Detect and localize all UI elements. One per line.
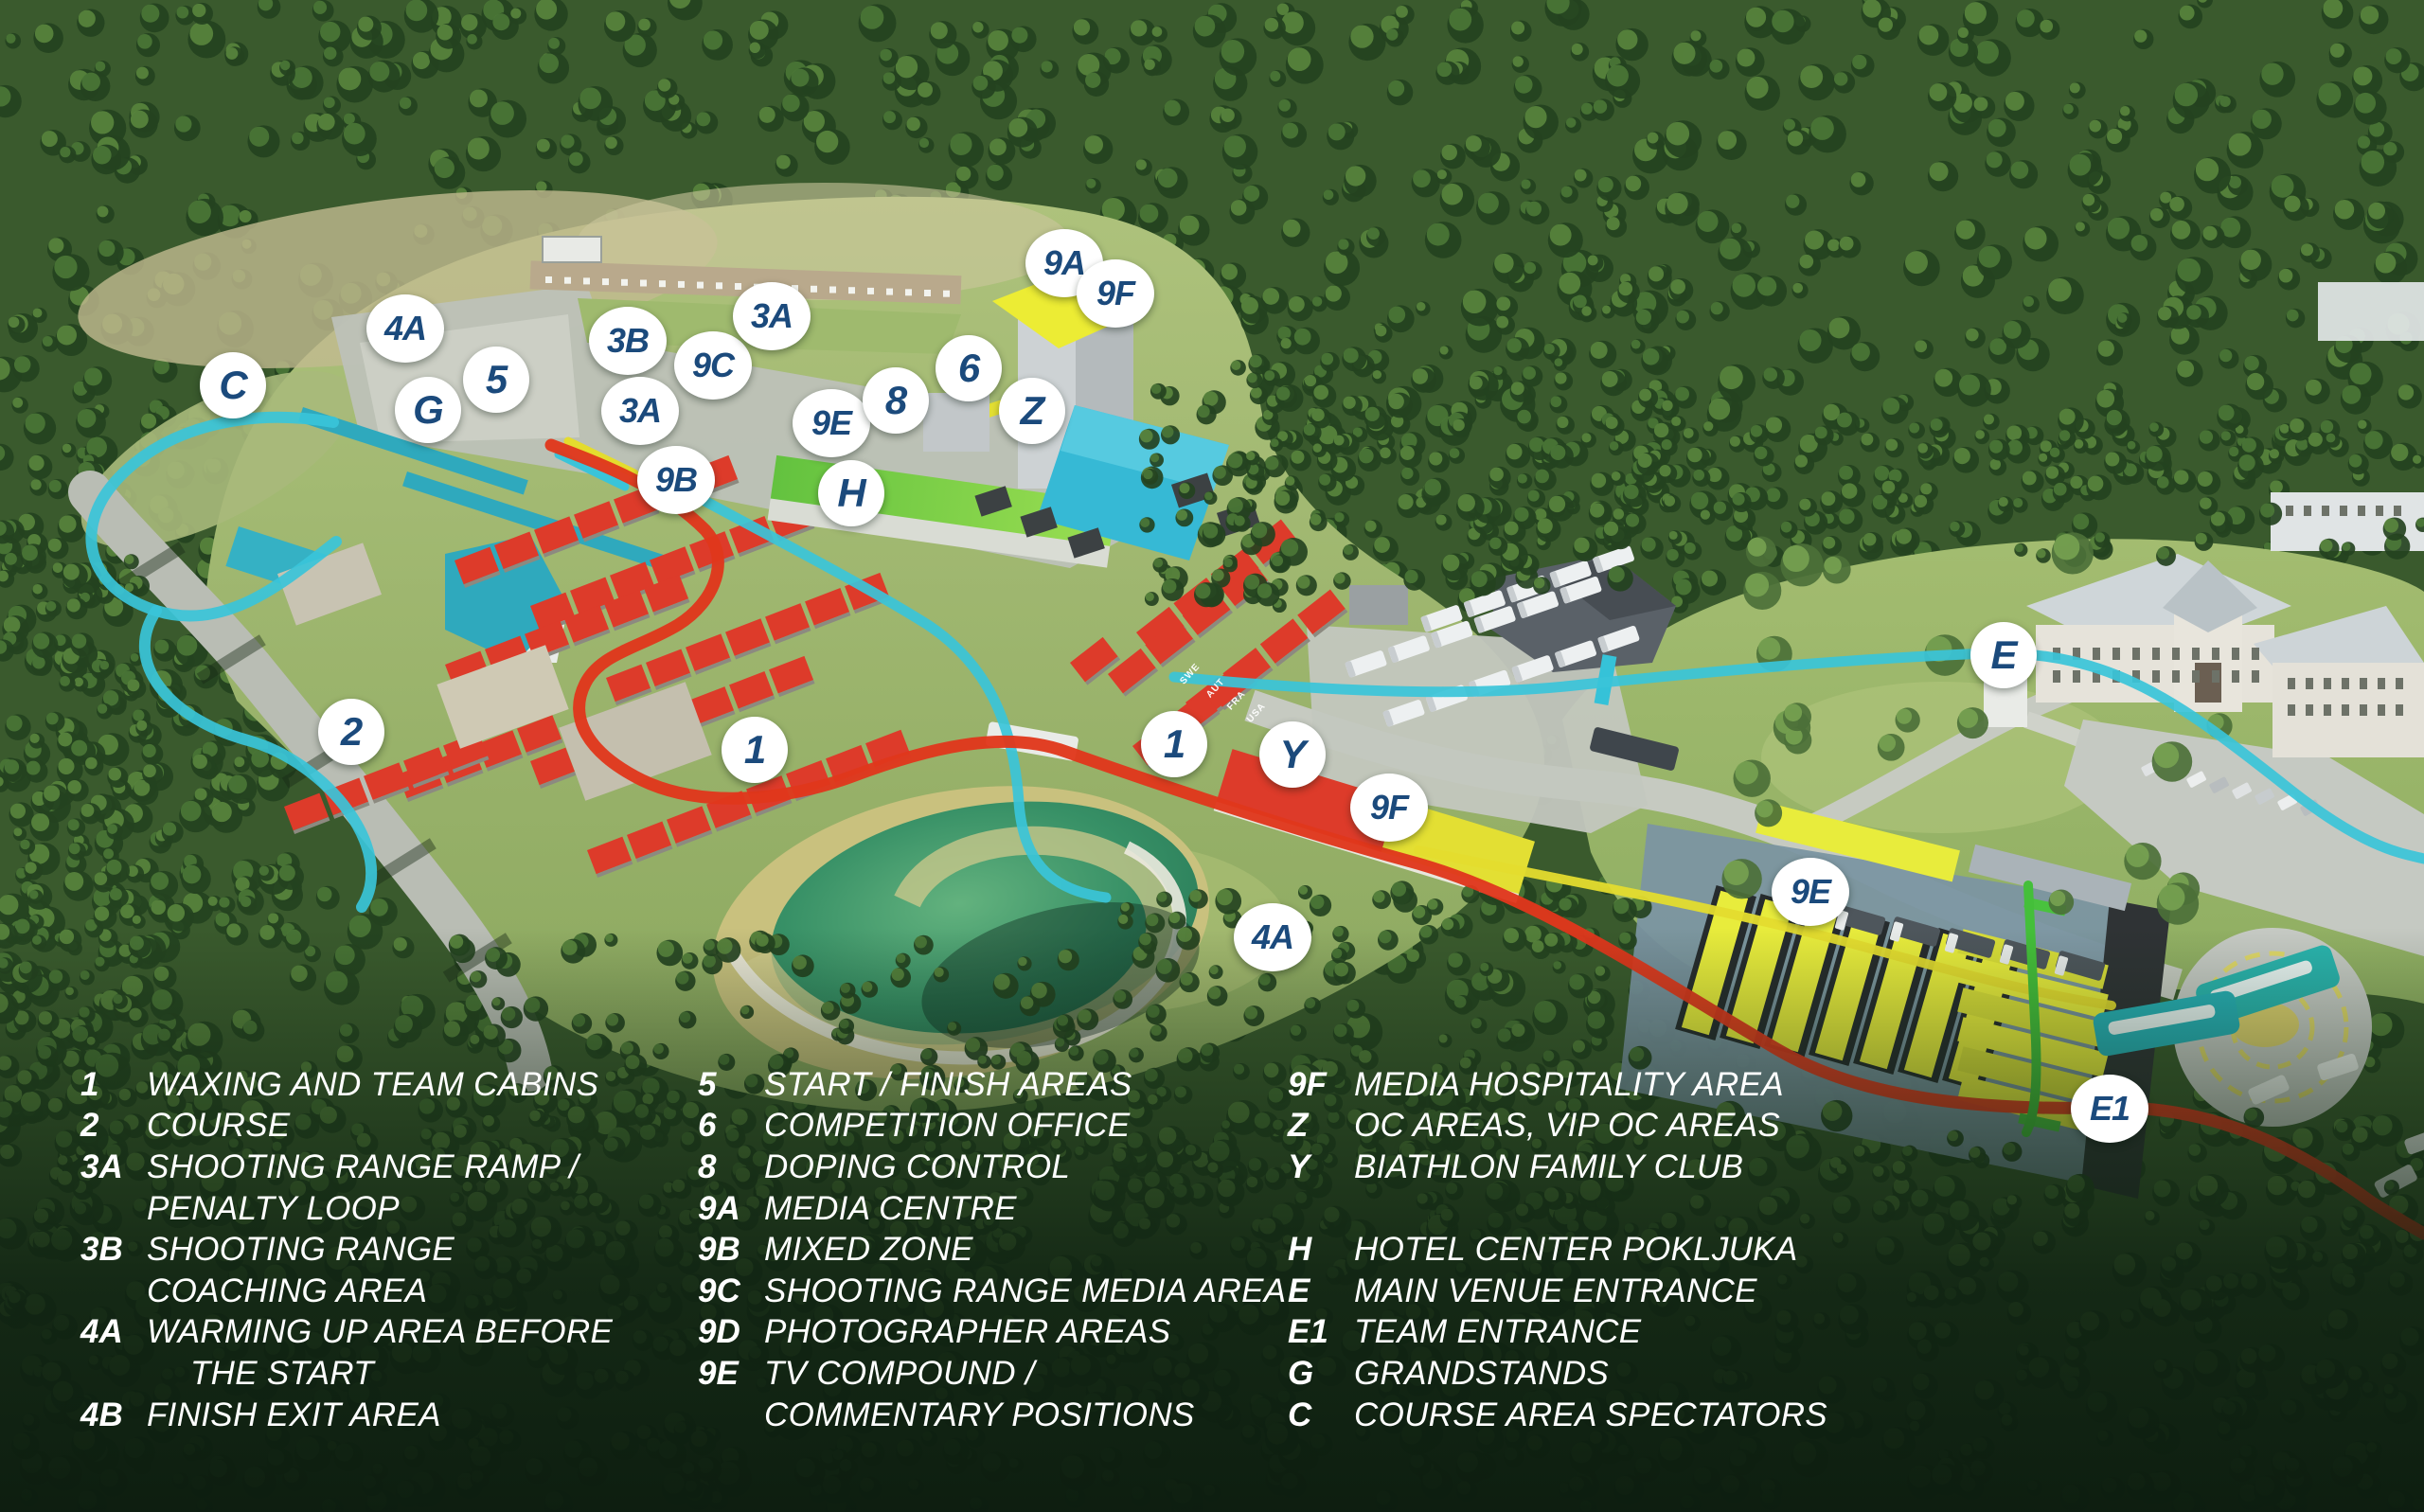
legend-item: 1WAXING AND TEAM CABINS <box>80 1064 613 1106</box>
legend-item: EMAIN VENUE ENTRANCE <box>1288 1271 1827 1312</box>
legend-item-code: E1 <box>1288 1313 1354 1351</box>
map-marker-g: G <box>395 377 461 443</box>
map-marker-3a: 3A <box>733 282 811 350</box>
legend-item: 3ASHOOTING RANGE RAMP / <box>80 1147 613 1188</box>
legend-item: 9BMIXED ZONE <box>698 1229 1286 1271</box>
legend-item: E1TEAM ENTRANCE <box>1288 1312 1827 1354</box>
legend-item-label: THE START <box>147 1355 374 1393</box>
legend-item-label: SHOOTING RANGE <box>147 1231 454 1269</box>
legend-item-code: 9E <box>698 1355 764 1393</box>
map-marker-9f: 9F <box>1077 259 1154 328</box>
map-marker-9e: 9E <box>793 389 870 457</box>
legend-item-code: G <box>1288 1355 1354 1393</box>
map-marker-z: Z <box>999 378 1065 444</box>
legend-item: GGRANDSTANDS <box>1288 1353 1827 1395</box>
legend-item-code: Z <box>1288 1107 1354 1145</box>
map-marker-9b: 9B <box>637 446 715 514</box>
legend-item-code: 4B <box>80 1396 147 1434</box>
legend-item: 4BFINISH EXIT AREA <box>80 1395 613 1436</box>
legend-item-label: PENALTY LOOP <box>147 1190 400 1228</box>
map-marker-9e-2: 9E <box>1772 858 1849 926</box>
legend-item: 2COURSE <box>80 1106 613 1147</box>
legend-item-code: 3A <box>80 1148 147 1186</box>
map-marker-6: 6 <box>936 335 1002 401</box>
legend-item: 5START / FINISH AREAS <box>698 1064 1286 1106</box>
legend-item-code: 8 <box>698 1148 764 1186</box>
legend-item: THE START <box>80 1353 613 1395</box>
map-marker-3a-2: 3A <box>601 377 679 445</box>
legend-item-label: PHOTOGRAPHER AREAS <box>764 1313 1170 1351</box>
legend-item-code: 4A <box>80 1313 147 1351</box>
legend-item-label: MAIN VENUE ENTRANCE <box>1354 1272 1757 1310</box>
legend-item-code: 1 <box>80 1066 147 1104</box>
legend-item-code: C <box>1288 1396 1354 1434</box>
legend-item-code: E <box>1288 1272 1354 1310</box>
map-marker-4a-2: 4A <box>1234 903 1311 971</box>
map-marker-3b: 3B <box>589 307 667 375</box>
legend-item-label: GRANDSTANDS <box>1354 1355 1609 1393</box>
legend-item: HHOTEL CENTER POKLJUKA <box>1288 1229 1827 1271</box>
legend-item-label: COACHING AREA <box>147 1272 427 1310</box>
legend-item-label: MEDIA HOSPITALITY AREA <box>1354 1066 1784 1104</box>
legend-item-code: 5 <box>698 1066 764 1104</box>
legend-column-2: 5START / FINISH AREAS6COMPETITION OFFICE… <box>698 1064 1286 1435</box>
legend-item-label: COURSE AREA SPECTATORS <box>1354 1396 1827 1434</box>
legend-item-label: SHOOTING RANGE RAMP / <box>147 1148 579 1186</box>
legend-column-3: 9FMEDIA HOSPITALITY AREAZOC AREAS, VIP O… <box>1288 1064 1827 1435</box>
legend-item-label: COMMENTARY POSITIONS <box>764 1396 1195 1434</box>
legend-item: 8DOPING CONTROL <box>698 1147 1286 1188</box>
map-marker-h: H <box>818 460 884 526</box>
legend-item-label: DOPING CONTROL <box>764 1148 1070 1186</box>
legend-item: COMMENTARY POSITIONS <box>698 1395 1286 1436</box>
map-marker-8: 8 <box>863 367 929 434</box>
legend-item-label: TV COMPOUND / <box>764 1355 1035 1393</box>
map-marker-y: Y <box>1259 721 1326 788</box>
map-marker-4a: 4A <box>366 294 444 363</box>
legend-item: 9DPHOTOGRAPHER AREAS <box>698 1312 1286 1354</box>
legend-item-label: MIXED ZONE <box>764 1231 973 1269</box>
map-marker-9f-2: 9F <box>1350 774 1428 842</box>
legend-column-1: 1WAXING AND TEAM CABINS2COURSE3ASHOOTING… <box>80 1064 613 1435</box>
legend-item-code: 6 <box>698 1107 764 1145</box>
venue-map: C4AG53B9C3A3A9B9EH869A9FZ211Y9F4A9EEE1 S… <box>0 0 2424 1512</box>
legend-item-code: 9F <box>1288 1066 1354 1104</box>
legend-item: CCOURSE AREA SPECTATORS <box>1288 1395 1827 1436</box>
legend-item-label: TEAM ENTRANCE <box>1354 1313 1641 1351</box>
legend-item: 3BSHOOTING RANGE <box>80 1229 613 1271</box>
legend-item-code: 9B <box>698 1231 764 1269</box>
map-marker-e: E <box>1970 622 2037 688</box>
map-marker-c: C <box>200 352 266 418</box>
map-marker-1: 1 <box>722 717 788 783</box>
legend-item: 9CSHOOTING RANGE MEDIA AREA <box>698 1271 1286 1312</box>
competition-office <box>923 393 989 452</box>
legend-item-label: SHOOTING RANGE MEDIA AREA <box>764 1272 1286 1310</box>
legend-item-label: BIATHLON FAMILY CLUB <box>1354 1148 1743 1186</box>
map-marker-5: 5 <box>463 347 529 413</box>
legend-item-code: 3B <box>80 1231 147 1269</box>
legend-item: COACHING AREA <box>80 1271 613 1312</box>
legend-item: 9ETV COMPOUND / <box>698 1353 1286 1395</box>
legend-item-label: MEDIA CENTRE <box>764 1190 1017 1228</box>
map-marker-e1: E1 <box>2071 1075 2148 1143</box>
legend-item-label: FINISH EXIT AREA <box>147 1396 441 1434</box>
legend-item-label: WAXING AND TEAM CABINS <box>147 1066 598 1104</box>
legend-item: ZOC AREAS, VIP OC AREAS <box>1288 1106 1827 1147</box>
legend-item-label: HOTEL CENTER POKLJUKA <box>1354 1231 1798 1269</box>
legend-item-code: H <box>1288 1231 1354 1269</box>
legend-item-label: OC AREAS, VIP OC AREAS <box>1354 1107 1780 1145</box>
legend-item: 9FMEDIA HOSPITALITY AREA <box>1288 1064 1827 1106</box>
legend-item: 6COMPETITION OFFICE <box>698 1106 1286 1147</box>
map-marker-2: 2 <box>318 699 384 765</box>
legend-item-code: Y <box>1288 1148 1354 1186</box>
legend-item-label: COURSE <box>147 1107 291 1145</box>
map-marker-9c: 9C <box>674 331 752 400</box>
legend-item: PENALTY LOOP <box>80 1188 613 1230</box>
map-marker-1-2: 1 <box>1141 711 1207 777</box>
legend-spacer <box>1288 1188 1827 1230</box>
legend-item: 4AWARMING UP AREA BEFORE <box>80 1312 613 1354</box>
legend-item-label: START / FINISH AREAS <box>764 1066 1132 1104</box>
legend-item-code: 2 <box>80 1107 147 1145</box>
legend-item: 9AMEDIA CENTRE <box>698 1188 1286 1230</box>
video-screen <box>543 237 601 262</box>
legend-item: YBIATHLON FAMILY CLUB <box>1288 1147 1827 1188</box>
legend-item-code: 9D <box>698 1313 764 1351</box>
legend-item-label: WARMING UP AREA BEFORE <box>147 1313 613 1351</box>
legend-item-label: COMPETITION OFFICE <box>764 1107 1131 1145</box>
legend-item-code: 9C <box>698 1272 764 1310</box>
legend-item-code: 9A <box>698 1190 764 1228</box>
